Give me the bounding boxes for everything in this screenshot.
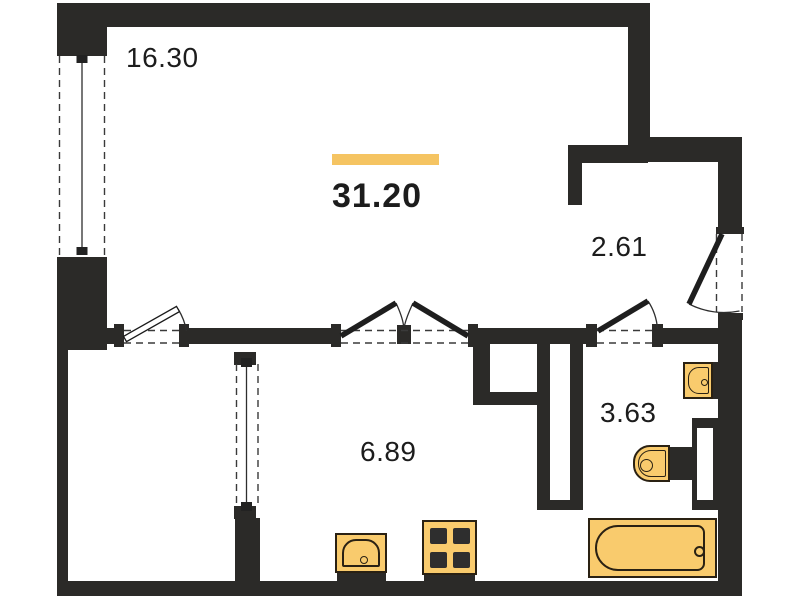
door-icon [597,301,658,343]
wall-left-block [57,257,107,350]
shaft-cavity [550,344,570,500]
wall-mid-c [477,328,588,344]
total-area-underline [332,154,439,165]
floor-plan: 16.30 31.20 2.61 3.63 6.89 [0,0,800,600]
bathtub-basin [595,525,705,571]
stove-burner [453,528,470,544]
kitchen-duct-cavity [490,344,537,392]
wall-right-hall [718,162,742,228]
toilet-cistern [668,447,692,480]
room-area-kitchen: 6.89 [360,438,417,466]
room-area-living: 16.30 [126,44,199,72]
glazed-partition-icon [237,358,259,511]
partition-lower [235,518,260,596]
door-post [114,324,124,347]
wall-bottom [57,581,742,596]
room-area-hallway: 2.61 [591,233,648,261]
bathtub-drain [694,546,705,557]
toilet-icon [633,445,670,482]
wall-right-top-horizontal [648,137,742,162]
partition-cap-top [234,352,256,365]
partition-cap-bottom [234,506,256,519]
entrance-jamb-top [716,227,744,234]
stove-burner [430,528,447,544]
window-icon [60,55,105,256]
washbasin-tap [701,379,708,386]
stove-icon [422,520,477,575]
kitchen-sink-icon [335,533,387,573]
wall-mid-b [188,328,337,344]
bathtub-icon [588,518,717,578]
wall-top-left-block [57,3,107,56]
doors-windows-overlay [0,0,800,600]
wall-right-upper [628,27,650,162]
bath-niche-cavity [697,428,713,500]
washbasin-icon [683,362,713,399]
double-door-center-post [397,325,411,344]
total-area: 31.20 [332,179,422,213]
wall-right-lower [718,320,742,581]
wall-hall-stub [568,163,582,205]
entrance-jamb-bottom [718,313,743,320]
wall-top [57,3,650,27]
wall-hall-top [568,145,648,163]
wall-mid-d [662,328,718,344]
entrance-door-icon [689,234,742,312]
door-post [586,324,597,347]
stove-burner [453,552,470,568]
stove-burner [430,552,447,568]
door-icon [124,306,187,343]
toilet-drain [640,459,653,472]
door-post [331,324,341,347]
room-area-bathroom: 3.63 [600,399,657,427]
wall-left-lower [57,350,68,596]
kitchen-sink-drain [360,556,368,564]
